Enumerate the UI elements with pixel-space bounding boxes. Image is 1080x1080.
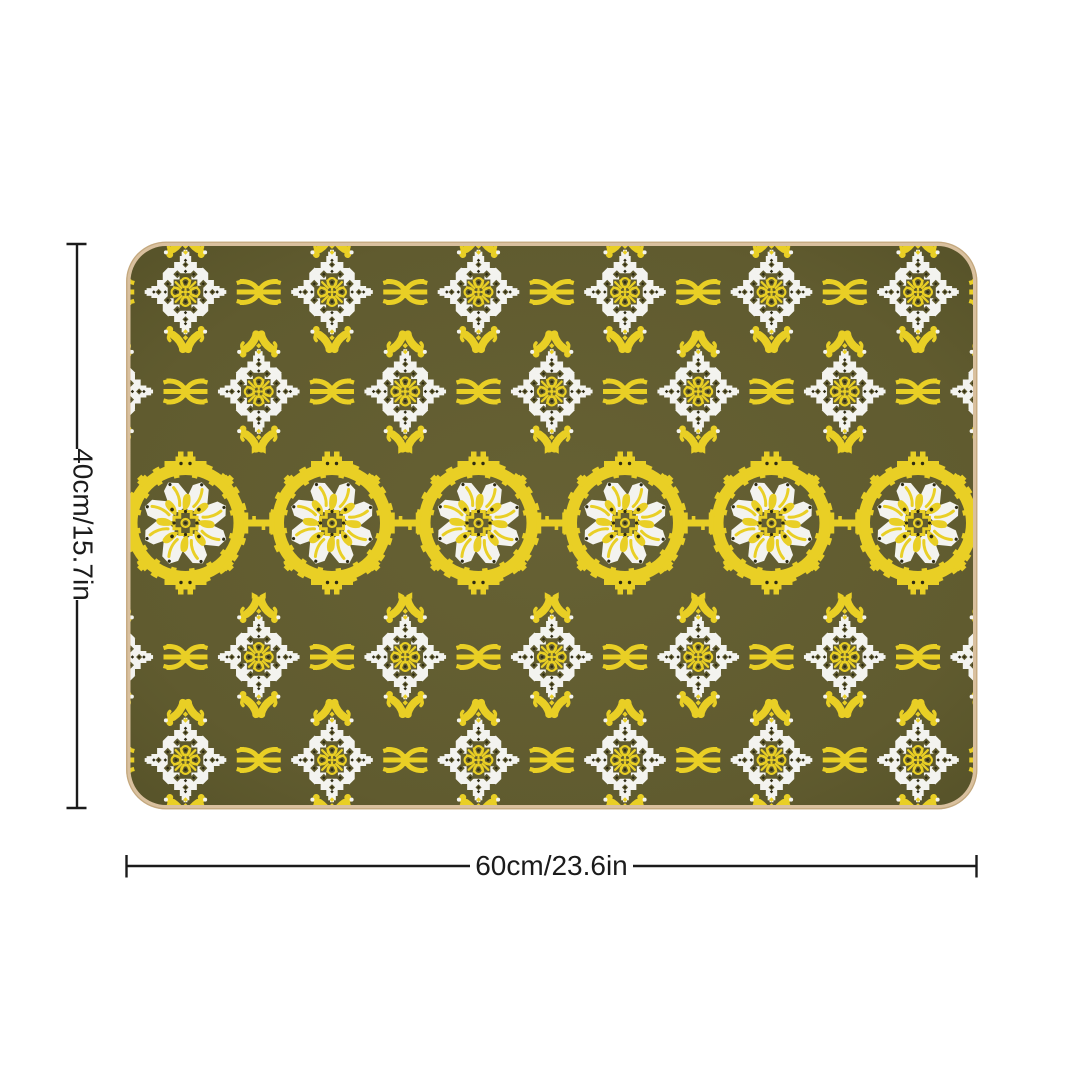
svg-text:40cm/15.7in: 40cm/15.7in: [68, 448, 99, 601]
svg-text:60cm/23.6in: 60cm/23.6in: [475, 850, 628, 881]
